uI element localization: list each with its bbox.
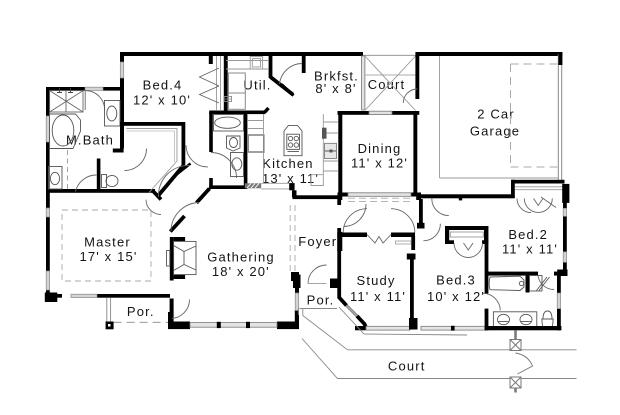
- svg-text:Por.: Por.: [127, 304, 155, 319]
- svg-text:11' x 11': 11' x 11': [350, 289, 406, 304]
- svg-text:2 Car: 2 Car: [477, 107, 515, 122]
- svg-text:10' x 12': 10' x 12': [427, 289, 485, 304]
- svg-text:Gathering: Gathering: [207, 250, 274, 265]
- svg-text:Util.: Util.: [243, 77, 271, 92]
- svg-text:Bed.4: Bed.4: [143, 78, 183, 93]
- svg-text:Garage: Garage: [470, 124, 520, 139]
- svg-text:11' x 12': 11' x 12': [351, 156, 408, 171]
- svg-text:Bed.2: Bed.2: [508, 227, 548, 242]
- svg-text:8' x 8': 8' x 8': [315, 81, 356, 96]
- svg-text:Por.: Por.: [307, 292, 335, 307]
- svg-text:12' x 10': 12' x 10': [133, 93, 191, 108]
- svg-text:Court: Court: [388, 359, 426, 374]
- svg-text:Dining: Dining: [358, 141, 402, 156]
- svg-text:Master: Master: [84, 235, 131, 250]
- svg-text:18' x 20': 18' x 20': [212, 264, 270, 279]
- svg-text:Study: Study: [357, 273, 396, 288]
- svg-text:Bed.3: Bed.3: [436, 273, 476, 288]
- svg-text:11' x 11': 11' x 11': [502, 241, 558, 256]
- svg-text:Kitchen: Kitchen: [262, 156, 313, 171]
- svg-text:Foyer: Foyer: [298, 234, 337, 249]
- svg-text:17' x 15': 17' x 15': [80, 249, 138, 264]
